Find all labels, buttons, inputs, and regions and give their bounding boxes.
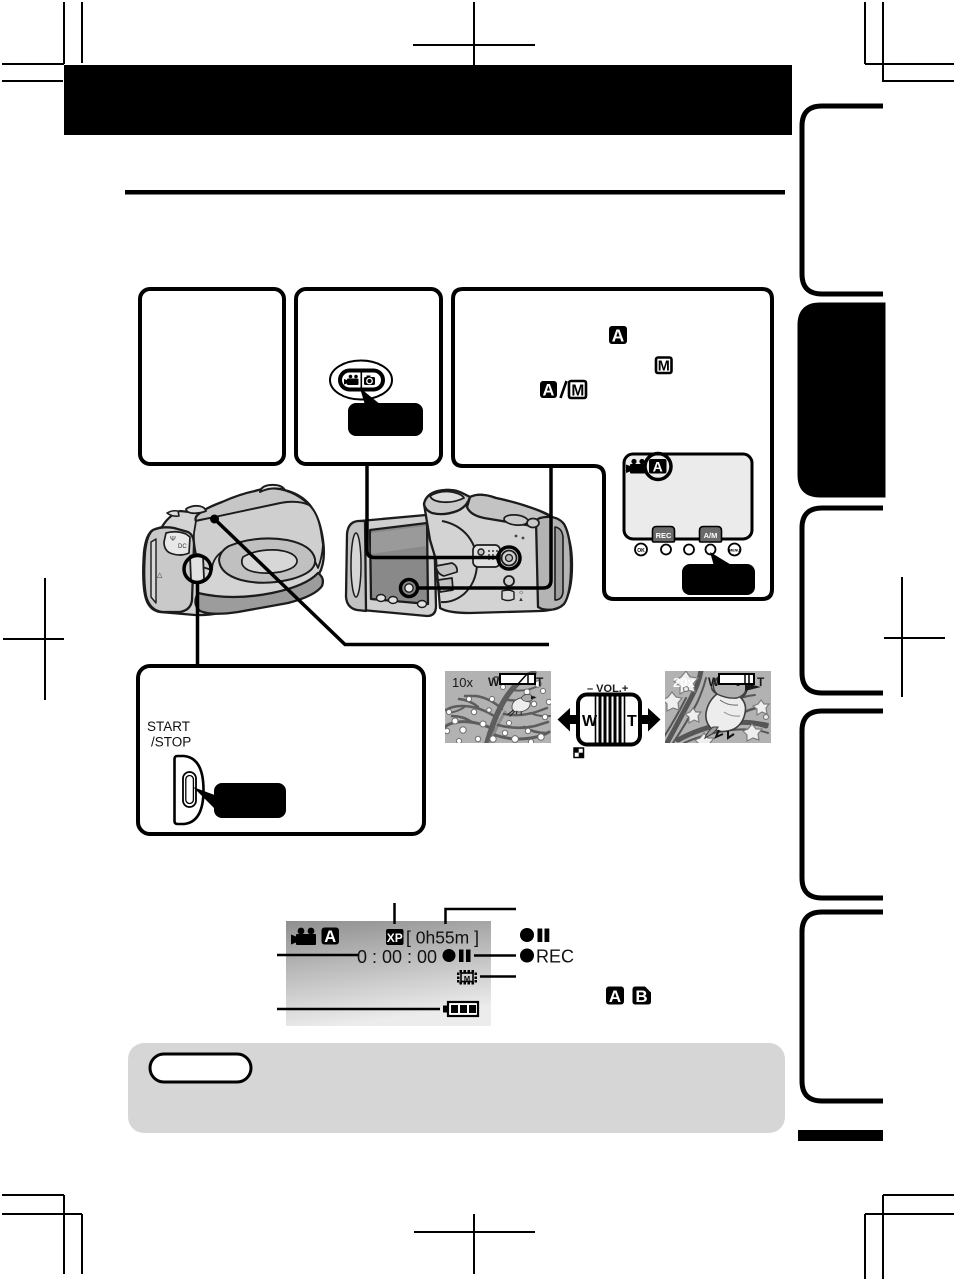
svg-text:A/M: A/M bbox=[704, 531, 718, 540]
svg-text:START: START bbox=[147, 719, 190, 734]
svg-text:OK: OK bbox=[637, 548, 645, 554]
svg-text:T: T bbox=[536, 675, 544, 689]
svg-text:A: A bbox=[543, 382, 555, 400]
svg-text:▲: ▲ bbox=[518, 597, 524, 603]
svg-text:A: A bbox=[653, 459, 663, 475]
svg-text:☼: ☼ bbox=[518, 589, 524, 596]
svg-text:△: △ bbox=[157, 572, 163, 579]
svg-text:A: A bbox=[609, 987, 621, 1006]
svg-text:DC: DC bbox=[178, 544, 187, 550]
svg-text:REC: REC bbox=[536, 947, 574, 967]
svg-text:REC: REC bbox=[656, 531, 672, 540]
svg-text:W: W bbox=[582, 713, 598, 730]
svg-text:T: T bbox=[627, 713, 637, 730]
svg-text:A: A bbox=[612, 326, 625, 346]
svg-text:10x: 10x bbox=[452, 675, 473, 690]
svg-text:[ 0h55m ]: [ 0h55m ] bbox=[406, 928, 479, 948]
svg-text:/STOP: /STOP bbox=[151, 735, 191, 750]
svg-text:0 : 00 : 00: 0 : 00 : 00 bbox=[357, 947, 437, 967]
svg-text:Ψ: Ψ bbox=[170, 536, 176, 543]
svg-text:20x: 20x bbox=[673, 675, 695, 690]
svg-text:B: B bbox=[635, 987, 647, 1006]
svg-text:T: T bbox=[757, 675, 765, 689]
svg-text:M: M bbox=[571, 383, 584, 400]
svg-text:W: W bbox=[488, 675, 500, 689]
svg-text:XP: XP bbox=[387, 931, 403, 945]
svg-text:A: A bbox=[324, 928, 336, 946]
svg-text:MENU: MENU bbox=[729, 548, 740, 552]
svg-text:M: M bbox=[658, 359, 670, 375]
svg-text:M: M bbox=[464, 974, 470, 983]
